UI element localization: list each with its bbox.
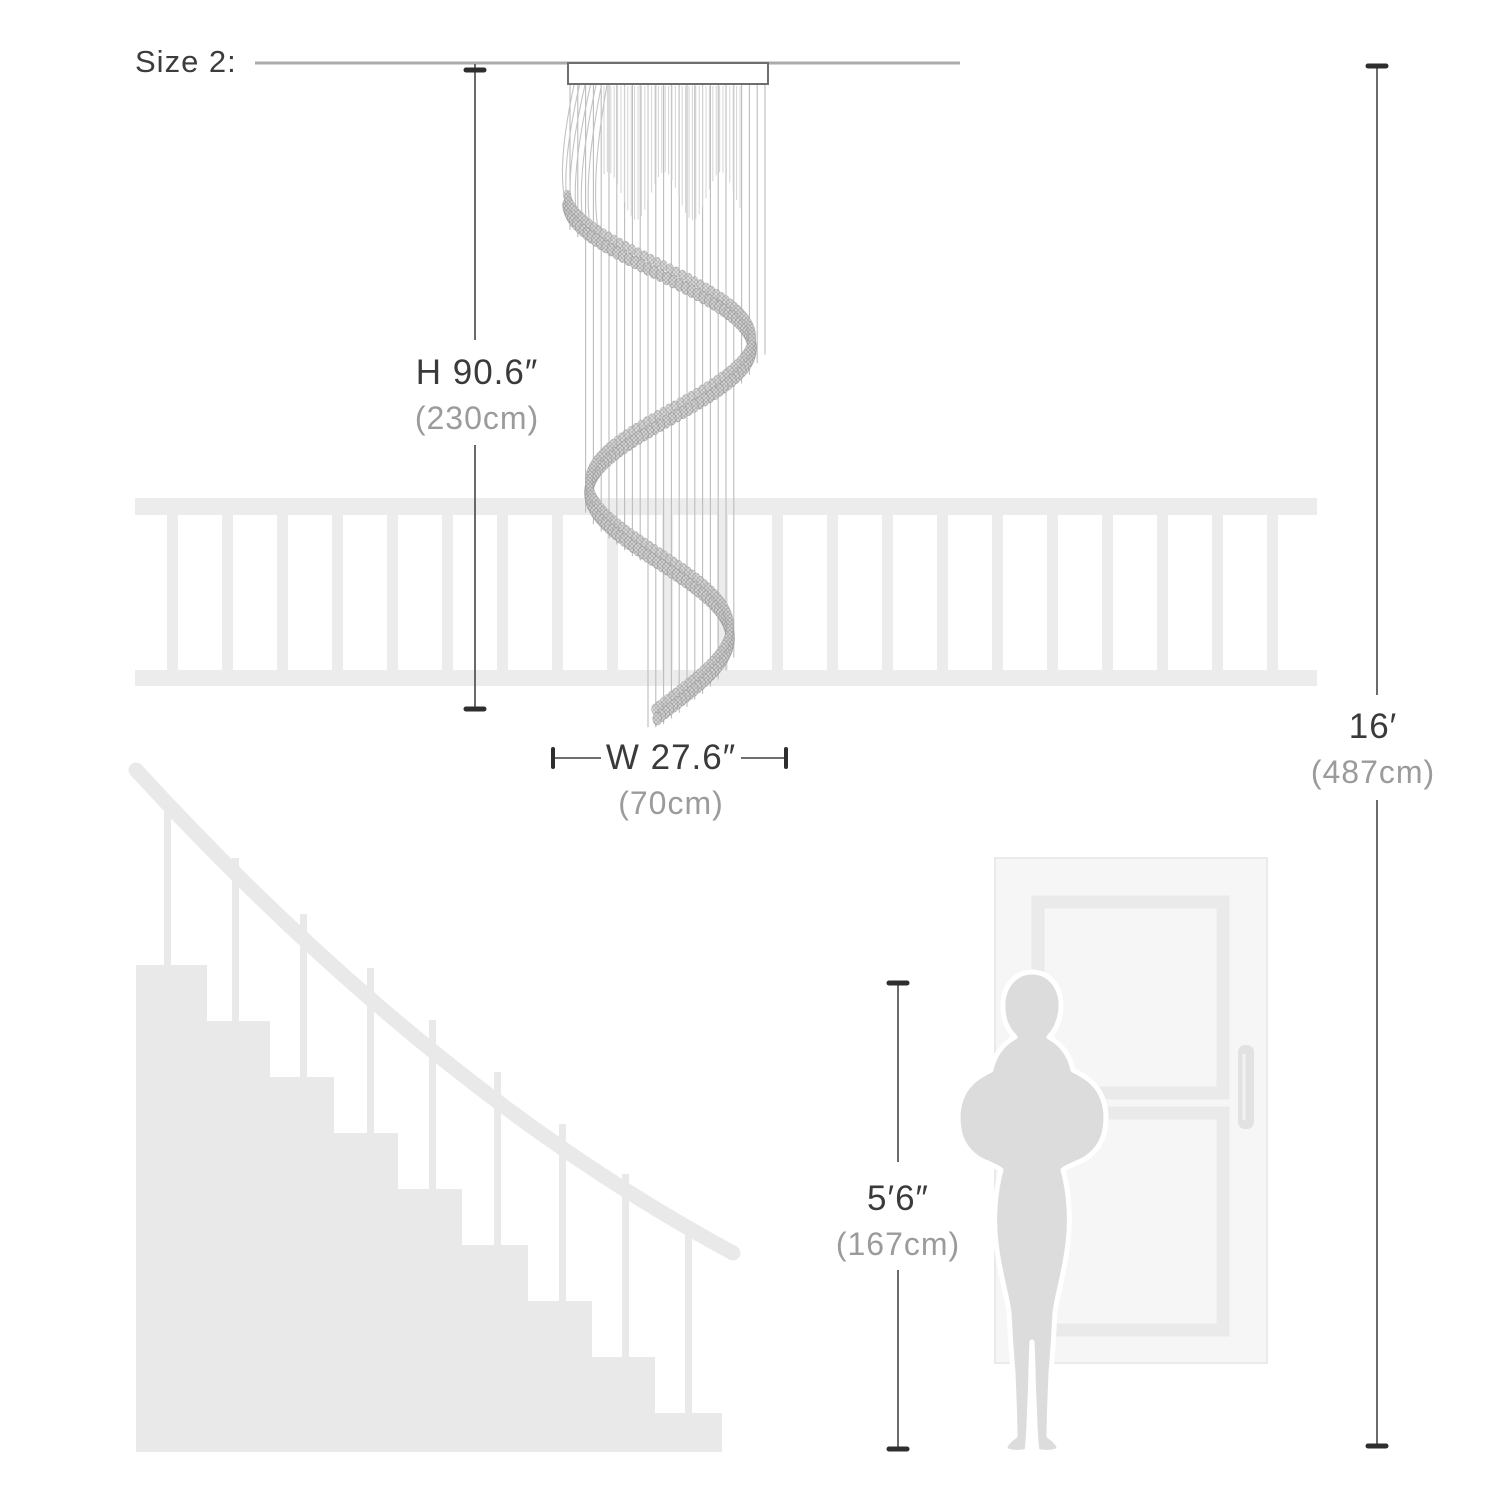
ceiling-height-metric: (487cm) bbox=[1311, 753, 1435, 792]
chandelier-canopy bbox=[568, 63, 768, 84]
chandelier-width-metric: (70cm) bbox=[606, 784, 736, 823]
chandelier-height-label: H 90.6″ (230cm) bbox=[415, 352, 539, 438]
chandelier-width-label: W 27.6″ (70cm) bbox=[606, 737, 736, 823]
diagram-artwork bbox=[0, 0, 1500, 1500]
chandelier-height-metric: (230cm) bbox=[415, 399, 539, 438]
staircase-silhouette bbox=[136, 770, 733, 1452]
person-height-metric: (167cm) bbox=[836, 1225, 960, 1264]
chandelier-width-imperial: W 27.6″ bbox=[606, 737, 736, 780]
chandelier-crystal-spiral bbox=[563, 190, 757, 725]
size-diagram: Size 2: H 90.6″ (230cm) W 27.6″ (70cm) 1… bbox=[0, 0, 1500, 1500]
size-variant-label: Size 2: bbox=[135, 44, 237, 80]
chandelier-height-imperial: H 90.6″ bbox=[415, 352, 539, 395]
ceiling-height-label: 16′ (487cm) bbox=[1311, 706, 1435, 792]
ceiling-height-imperial: 16′ bbox=[1311, 706, 1435, 749]
railing-bottom-bar bbox=[135, 670, 1317, 686]
person-height-imperial: 5′6″ bbox=[836, 1178, 960, 1221]
person-height-label: 5′6″ (167cm) bbox=[836, 1178, 960, 1264]
door-handle bbox=[1238, 1045, 1254, 1129]
